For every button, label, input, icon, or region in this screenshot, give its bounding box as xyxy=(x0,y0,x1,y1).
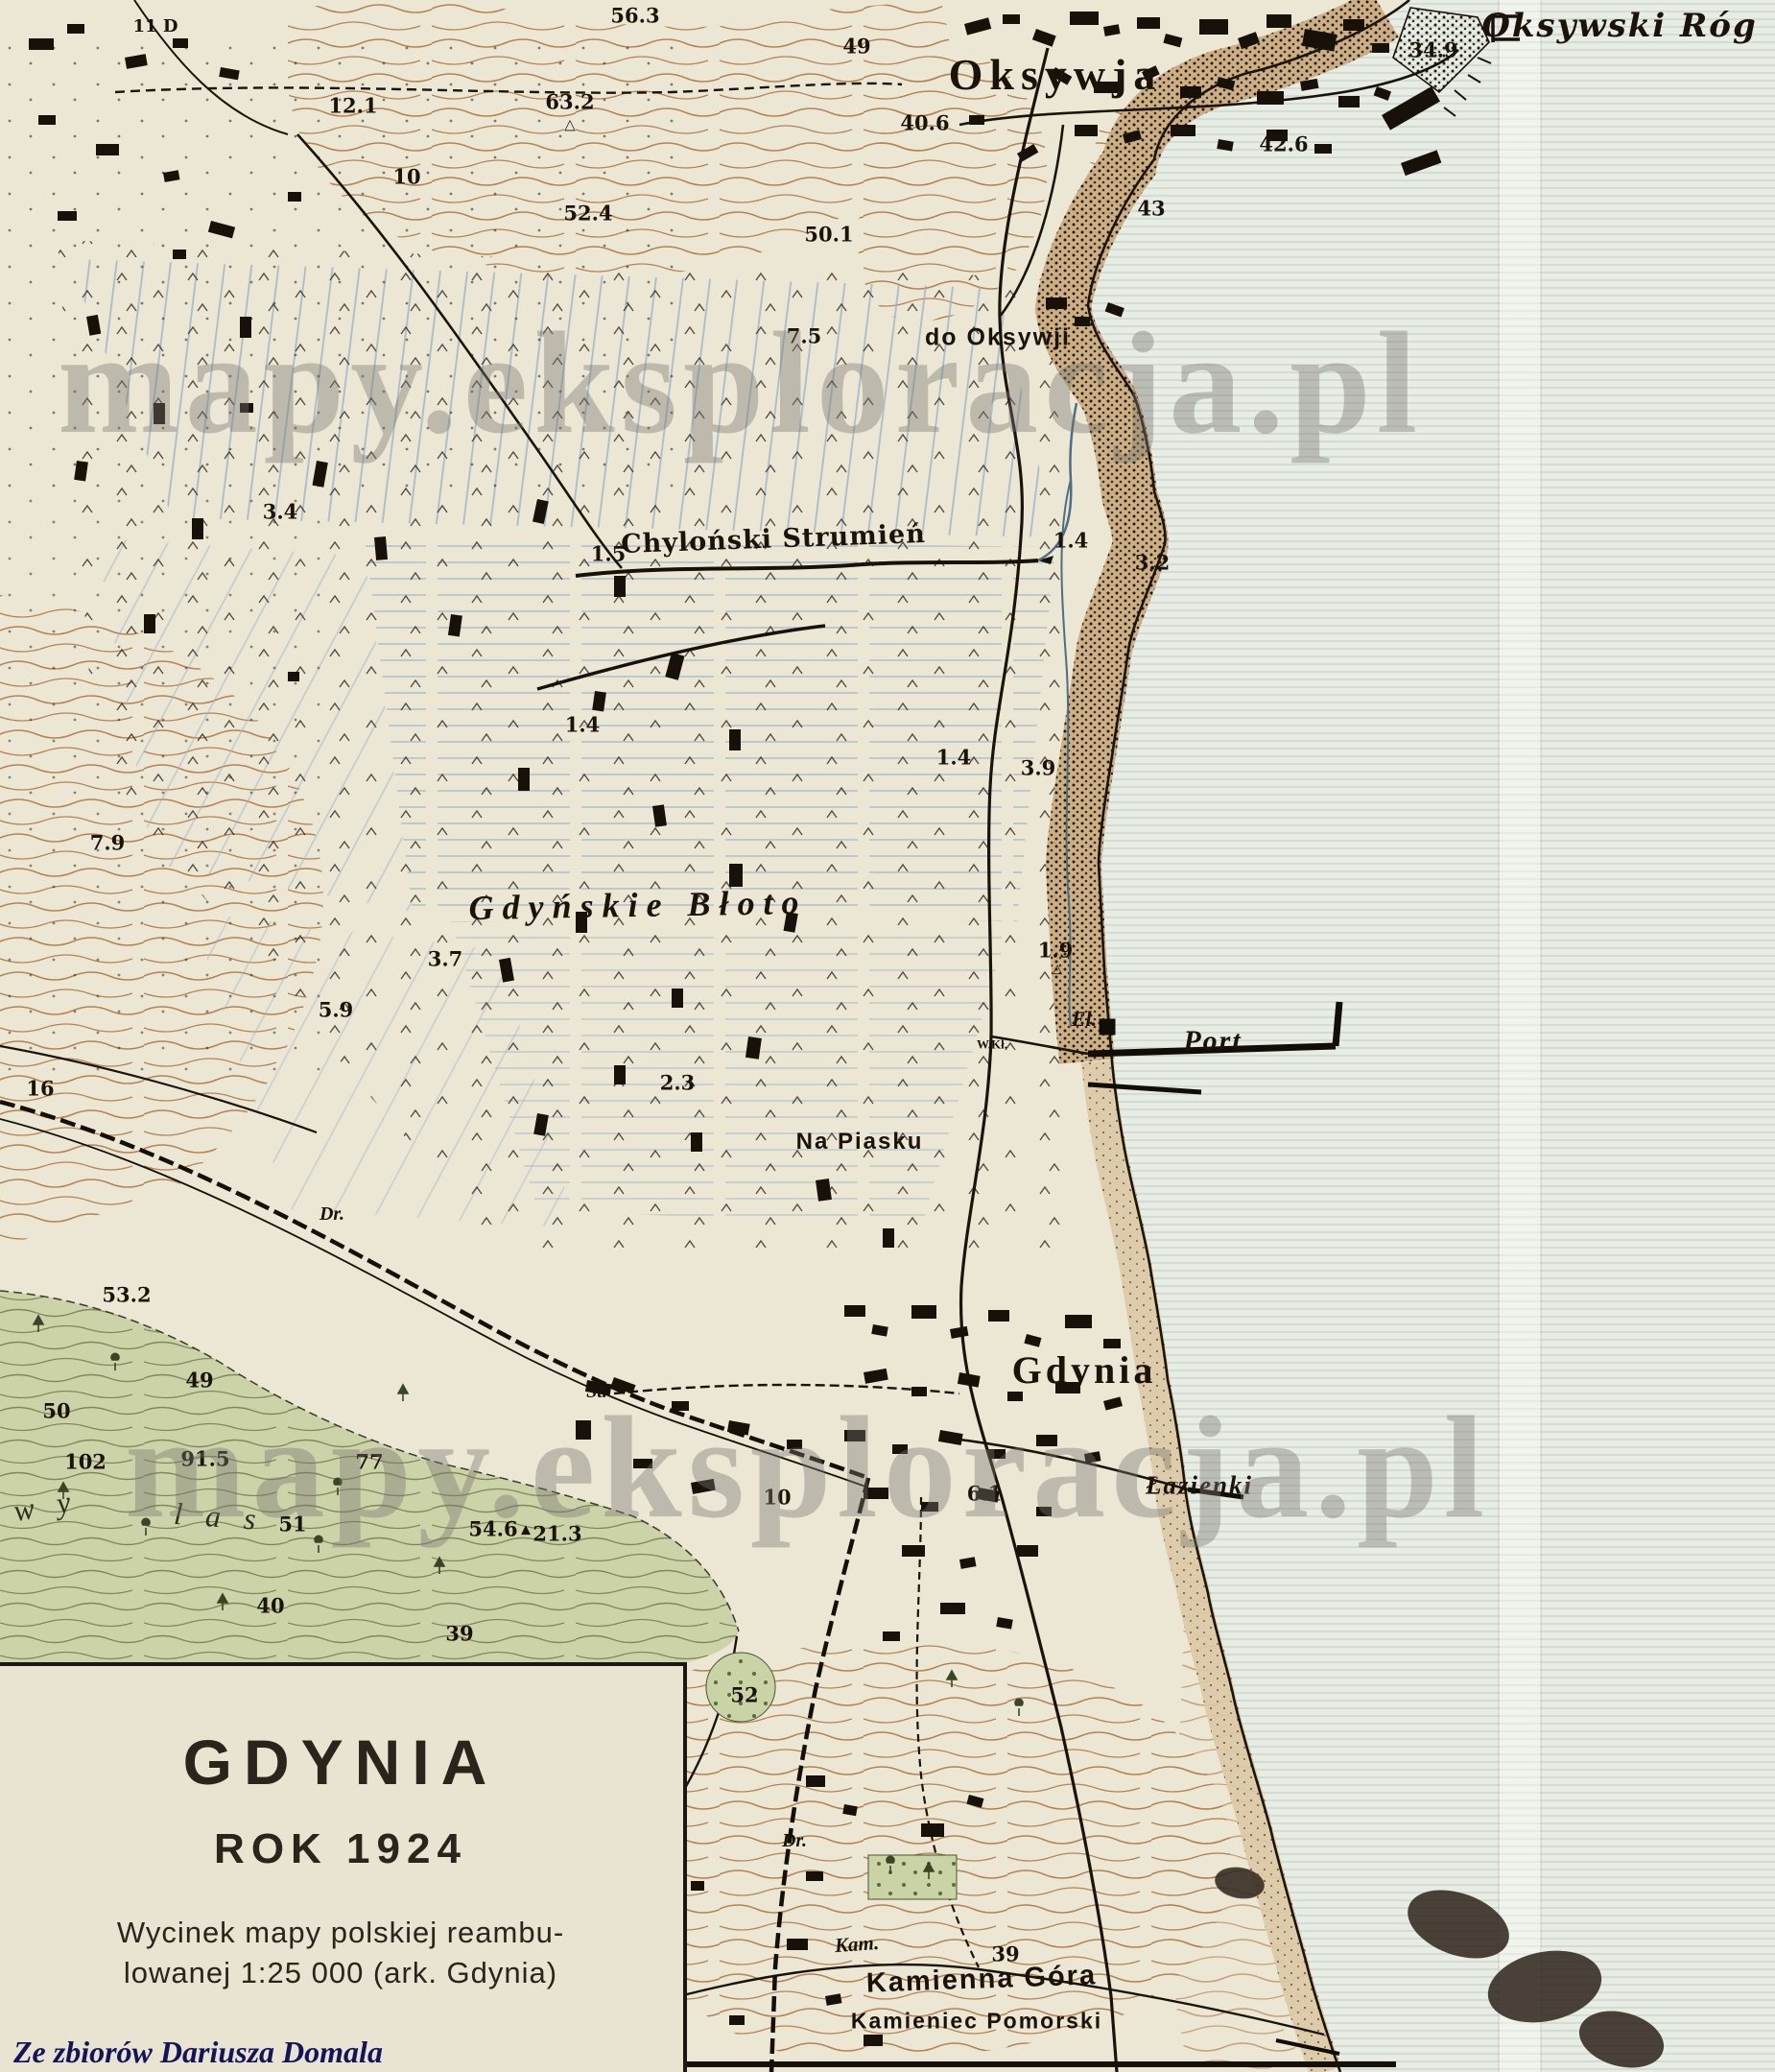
map-year: ROK 1924 xyxy=(0,1825,683,1873)
map-title: GDYNIA xyxy=(0,1726,683,1798)
paper-fold-crease xyxy=(1499,0,1541,2072)
collection-credit: Ze zbiorów Dariusza Domala xyxy=(13,2035,383,2070)
title-box: GDYNIA ROK 1924 Wycinek mapy polskiej re… xyxy=(0,1662,687,2072)
map-description-line1: Wycinek mapy polskiej reambu- xyxy=(0,1916,683,1950)
map-description-line2: lowanej 1:25 000 (ark. Gdynia) xyxy=(0,1956,683,1990)
scanned-map: OksywjaOksywski RógChyloński StrumieńGdy… xyxy=(0,0,1775,2072)
